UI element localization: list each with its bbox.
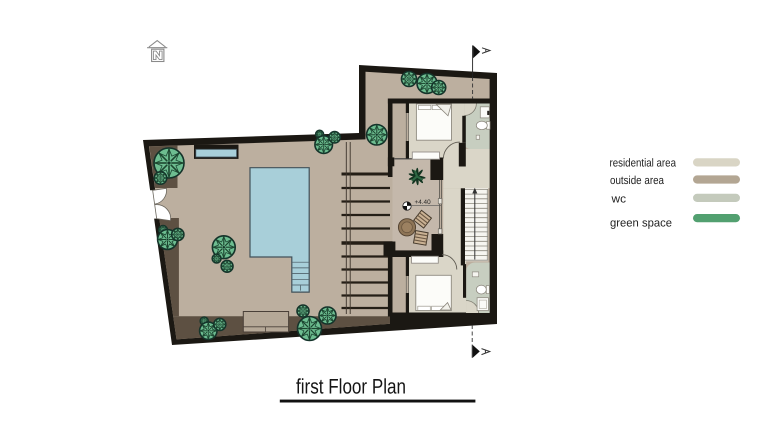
svg-text:wc: wc (610, 193, 626, 205)
svg-text:green space: green space (610, 217, 672, 229)
svg-text:+4.40: +4.40 (415, 199, 432, 206)
svg-text:residential area: residential area (610, 158, 677, 170)
svg-text:outside area: outside area (610, 175, 665, 187)
svg-text:first Floor Plan: first Floor Plan (296, 376, 406, 399)
